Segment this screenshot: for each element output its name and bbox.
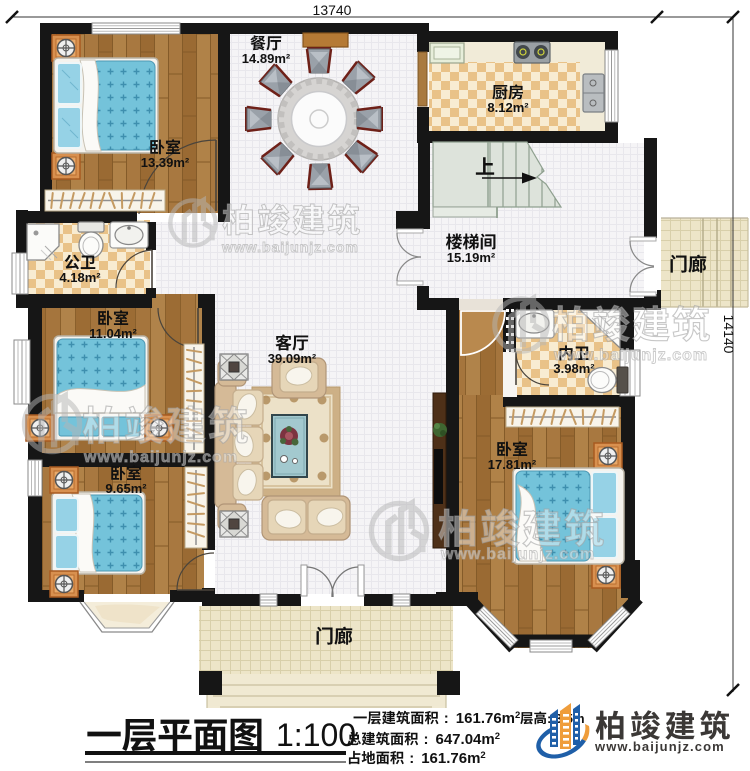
- svg-text:161.76m2: 161.76m2: [421, 750, 486, 767]
- svg-text::: :: [409, 750, 414, 767]
- svg-text:8.12m²: 8.12m²: [487, 100, 529, 115]
- svg-text:www.baijunjz.com: www.baijunjz.com: [83, 449, 238, 466]
- svg-text:1:100: 1:100: [276, 717, 356, 753]
- svg-text:15.19m²: 15.19m²: [447, 250, 496, 265]
- svg-text:9.65m²: 9.65m²: [105, 481, 147, 496]
- svg-text:www.baijunjz.com: www.baijunjz.com: [440, 546, 595, 563]
- svg-text::: :: [444, 710, 449, 727]
- svg-text:13740: 13740: [313, 2, 352, 18]
- svg-text:647.04m2: 647.04m2: [436, 731, 501, 748]
- svg-text:14.89m²: 14.89m²: [242, 51, 291, 66]
- svg-text:4.18m²: 4.18m²: [59, 270, 101, 285]
- svg-text:13.39m²: 13.39m²: [141, 155, 190, 170]
- svg-text:11.04m²: 11.04m²: [89, 326, 137, 341]
- svg-text:www.baijunjz.com: www.baijunjz.com: [553, 347, 708, 364]
- svg-text:161.76m2: 161.76m2: [456, 710, 521, 727]
- svg-text:14140: 14140: [721, 315, 737, 354]
- svg-text:www.baijunjz.com: www.baijunjz.com: [221, 239, 359, 255]
- svg-text:www.baijunjz.com: www.baijunjz.com: [594, 739, 725, 754]
- svg-text:17.81m²: 17.81m²: [488, 457, 537, 472]
- svg-text:39.09m²: 39.09m²: [268, 351, 317, 366]
- svg-text::: :: [424, 731, 429, 748]
